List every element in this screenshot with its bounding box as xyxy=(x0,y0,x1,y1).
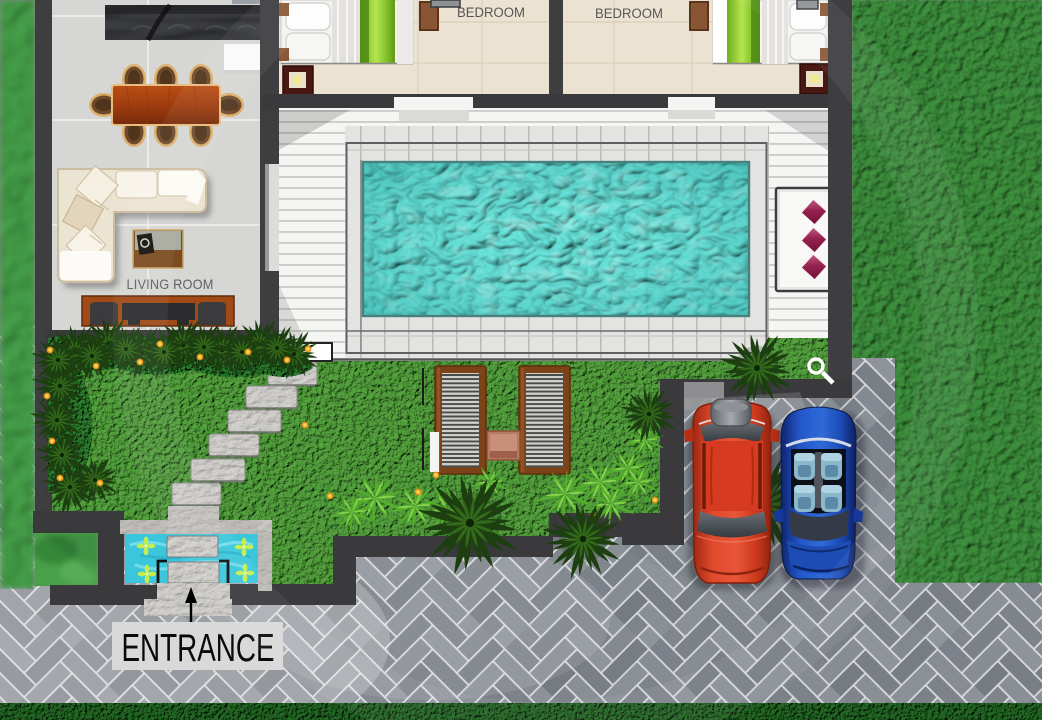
svg-text:BEDROOM: BEDROOM xyxy=(457,5,525,20)
svg-text:BEDROOM: BEDROOM xyxy=(595,6,663,21)
